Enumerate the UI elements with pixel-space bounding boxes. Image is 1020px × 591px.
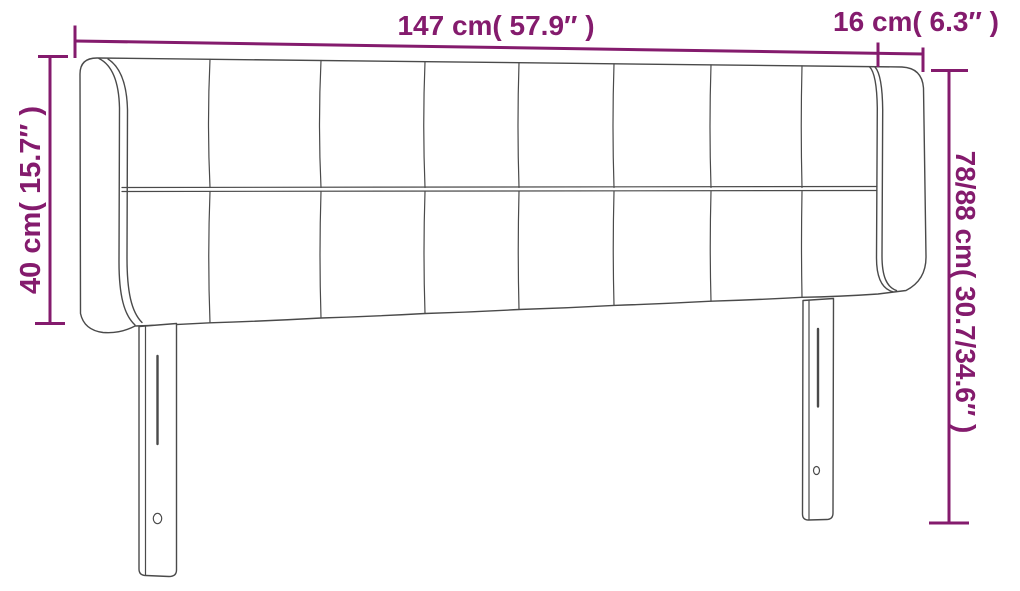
panel-height-label: 40 cm( 15.7″ ) <box>15 106 47 294</box>
left-leg <box>139 324 177 577</box>
overall-height-label: 78/88 cm( 30.7/34.6″ ) <box>950 151 981 434</box>
total-width-label: 147 cm( 57.9″ ) <box>397 10 594 41</box>
dimension-left-height: 40 cm( 15.7″ ) <box>15 57 68 325</box>
wing-depth-label: 16 cm( 6.3″ ) <box>833 6 999 37</box>
dimension-diagram: 147 cm( 57.9″ ) 16 cm( 6.3″ ) 40 cm( 15.… <box>0 0 1020 591</box>
dimension-right-height: 78/88 cm( 30.7/34.6″ ) <box>929 71 981 524</box>
headboard-dimension-drawing: 147 cm( 57.9″ ) 16 cm( 6.3″ ) 40 cm( 15.… <box>0 0 1020 591</box>
top-dimension-line <box>75 41 923 54</box>
headboard-outline <box>80 58 926 333</box>
headboard-drawing <box>80 58 926 577</box>
right-leg <box>803 299 834 521</box>
